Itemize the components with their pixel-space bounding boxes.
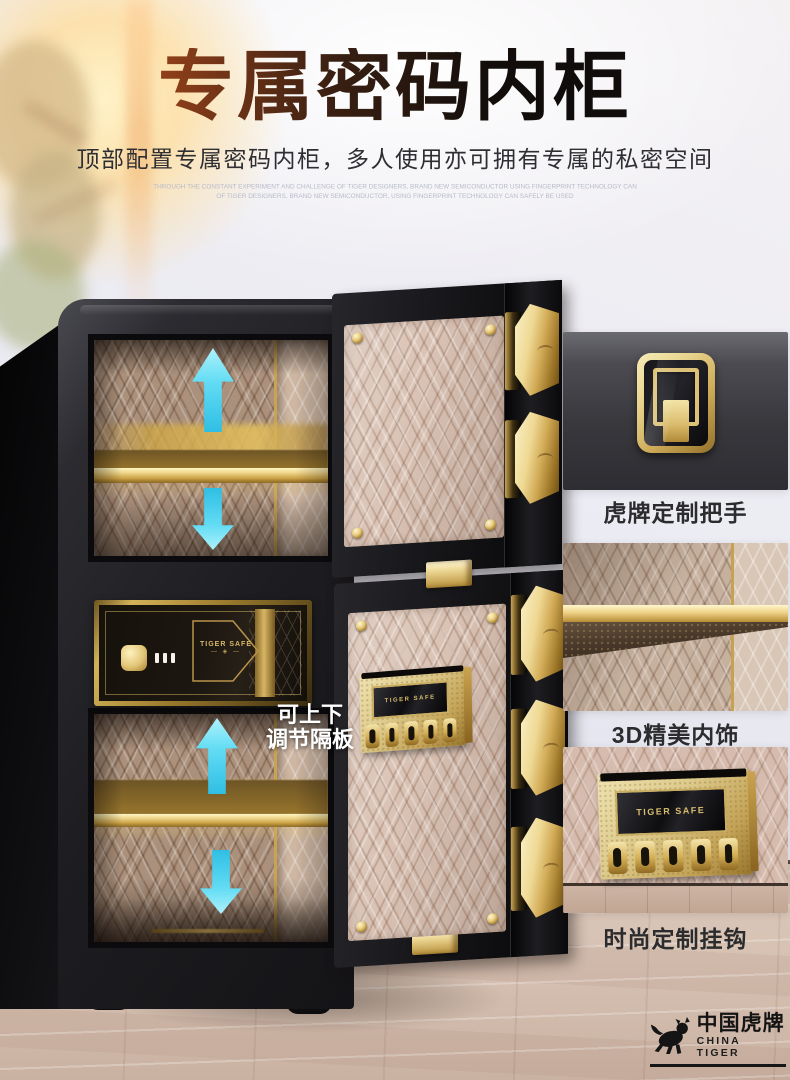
hook	[718, 838, 739, 870]
hinge-gold-knob	[515, 410, 559, 505]
hook-panel-glass: TIGER SAFE	[371, 680, 449, 720]
screw	[487, 612, 498, 624]
hook	[424, 719, 438, 744]
shelf-adjust-down-arrow-icon	[192, 488, 234, 550]
hook-panel-image: TIGER SAFE	[597, 768, 753, 879]
shelf-adjust-note: 可上下 调节隔板	[252, 702, 368, 752]
handle-glass	[644, 360, 708, 446]
screw	[356, 620, 367, 632]
door-hinge	[511, 698, 565, 797]
callout-wood-floor	[563, 883, 788, 913]
callout-label-hooks: 时尚定制挂钩	[563, 920, 788, 954]
callout-label-interior: 3D精美内饰	[563, 716, 788, 750]
logo-name-en: CHINA TIGER	[697, 1035, 788, 1059]
hinge-gold-knob	[515, 302, 559, 397]
hook-panel-side	[747, 771, 758, 871]
callout-card-hooks: TIGER SAFE	[563, 747, 788, 913]
fineprint: THROUGH THE CONSTANT EXPERIMENT AND CHAL…	[79, 182, 711, 201]
shelf-adjust-note-line1: 可上下	[252, 702, 368, 727]
hook-panel-top-strip	[361, 665, 463, 679]
password-inner-cabinet: TIGER SAFE — ◈ —	[94, 600, 312, 706]
promo-page: 专属密码内柜 顶部配置专属密码内柜，多人使用亦可拥有专属的私密空间 THROUG…	[0, 0, 790, 1080]
safe-top-compartment	[88, 334, 334, 562]
tiger-silhouette-icon	[650, 1017, 692, 1055]
custom-handle-image	[637, 353, 715, 453]
door-hook-panel: TIGER SAFE	[359, 665, 466, 753]
hook	[385, 722, 399, 747]
screw	[485, 519, 496, 531]
interior-gold-shelf	[563, 605, 788, 622]
hook	[690, 839, 711, 871]
hook-panel-top-strip	[600, 768, 746, 782]
hook-panel-glass: TIGER SAFE	[615, 787, 727, 835]
hook	[443, 718, 457, 743]
screw	[352, 332, 363, 344]
hinge-gold-knob	[521, 816, 565, 919]
door-hinge	[505, 410, 559, 505]
door-hinge-column	[504, 280, 562, 568]
gold-shelf	[94, 814, 328, 827]
page-title: 专属密码内柜	[0, 48, 790, 128]
hinge-gold-knob	[521, 584, 565, 683]
inner-cabinet-brand-block: TIGER SAFE — ◈ —	[195, 641, 257, 655]
logo-underline	[650, 1064, 786, 1067]
hook	[663, 840, 684, 872]
logo-name-cn: 中国虎牌	[697, 1012, 788, 1035]
door-hinge-column	[510, 570, 568, 958]
compartment-floor-trim	[152, 929, 264, 933]
page-subtitle: 顶部配置专属密码内柜，多人使用亦可拥有专属的私密空间	[0, 140, 790, 174]
shelf-surface	[94, 450, 328, 470]
door-bolt	[426, 560, 472, 589]
callout-card-interior	[563, 543, 788, 711]
hook-row	[366, 718, 458, 749]
header: 专属密码内柜 顶部配置专属密码内柜，多人使用亦可拥有专属的私密空间 THROUG…	[0, 48, 790, 206]
door-inner-quilt-panel: TIGER SAFE	[348, 603, 506, 941]
hook	[607, 842, 628, 874]
hook-row	[607, 838, 739, 874]
door-hinge	[511, 816, 565, 919]
hook-panel-brand: TIGER SAFE	[385, 695, 436, 705]
door-hinge	[511, 584, 565, 683]
inner-cabinet-button	[121, 645, 147, 671]
hook	[635, 841, 656, 873]
door-hinge	[505, 302, 559, 397]
safe-bottom-door: TIGER SAFE	[334, 570, 568, 968]
safe-top-door	[332, 280, 562, 578]
hook	[404, 721, 418, 746]
shelf-adjust-up-arrow-icon	[192, 348, 234, 432]
screw	[352, 527, 363, 539]
callout-label-handle: 虎牌定制把手	[563, 494, 788, 528]
hinge-gold-knob	[521, 698, 565, 797]
inner-cabinet-indicator-dots	[155, 653, 175, 663]
inner-cabinet-ornament: — ◈ —	[195, 648, 257, 655]
hook-panel-side	[463, 667, 472, 743]
screw	[485, 324, 496, 336]
hook-panel-brand: TIGER SAFE	[636, 805, 705, 817]
door-inner-quilt-panel	[344, 315, 504, 547]
shelf-adjust-note-line2: 调节隔板	[252, 727, 368, 752]
compartment-floor	[94, 898, 328, 942]
inner-cabinet-brand: TIGER SAFE	[195, 641, 257, 648]
fineprint-line1: THROUGH THE CONSTANT EXPERIMENT AND CHAL…	[79, 182, 711, 192]
inner-cabinet-face: TIGER SAFE — ◈ —	[99, 605, 307, 701]
shelf-reflection	[94, 827, 328, 841]
brand-logo: 中国虎牌 CHINA TIGER	[650, 1012, 788, 1067]
callout-card-handle	[563, 332, 788, 490]
fineprint-line2: OF TIGER DESIGNERS, BRAND NEW SEMICONDUC…	[79, 191, 711, 201]
screw	[356, 921, 367, 933]
screw	[487, 913, 498, 925]
gold-shelf	[94, 468, 328, 483]
